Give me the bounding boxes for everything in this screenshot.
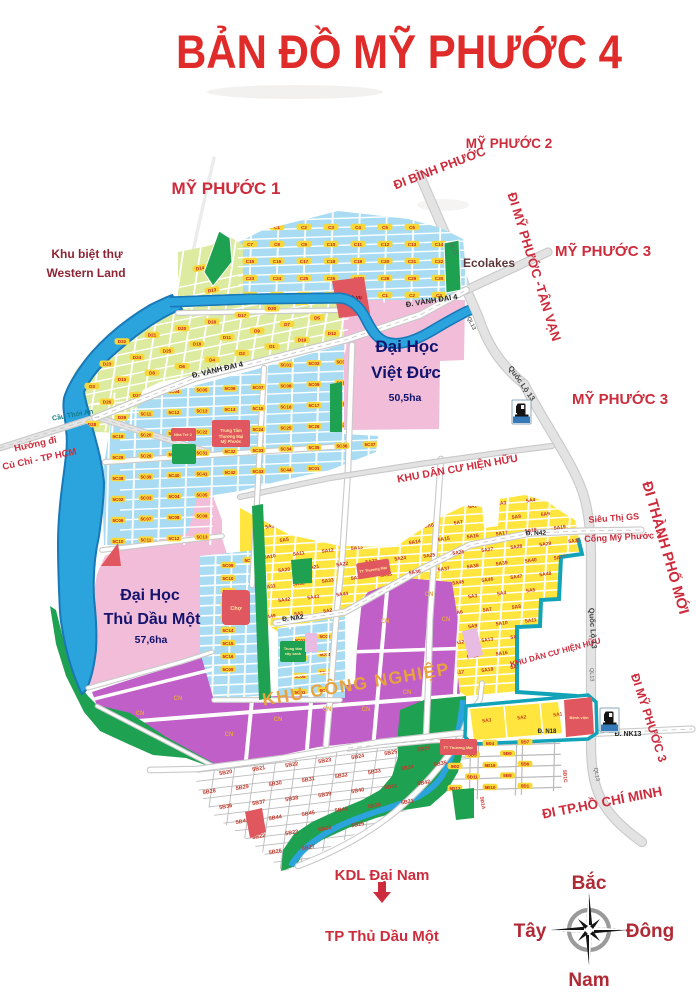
svg-text:C20: C20: [381, 259, 390, 264]
svg-text:5Đ7: 5Đ7: [521, 740, 530, 745]
svg-text:D32: D32: [118, 339, 127, 344]
svg-text:50,5ha: 50,5ha: [389, 392, 422, 404]
svg-text:5C09: 5C09: [197, 514, 208, 519]
svg-text:5C01: 5C01: [281, 362, 292, 367]
svg-text:C8: C8: [274, 242, 280, 247]
svg-text:5C14: 5C14: [225, 407, 236, 412]
svg-text:Western Land: Western Land: [46, 266, 125, 280]
svg-text:D10: D10: [118, 377, 127, 382]
svg-text:C1: C1: [382, 293, 388, 298]
svg-text:C28: C28: [381, 276, 390, 281]
svg-text:5C44: 5C44: [281, 467, 292, 472]
svg-text:5C12: 5C12: [169, 410, 180, 415]
svg-text:C10: C10: [327, 242, 336, 247]
svg-text:C23: C23: [246, 276, 255, 281]
svg-text:5C09: 5C09: [223, 563, 234, 568]
svg-text:5C19: 5C19: [113, 434, 124, 439]
svg-text:5C26: 5C26: [309, 424, 320, 429]
svg-text:C24: C24: [273, 276, 282, 281]
svg-text:CN: CN: [274, 717, 283, 723]
svg-text:D7: D7: [284, 322, 290, 327]
svg-text:5C13: 5C13: [197, 409, 208, 414]
svg-text:Đ. N42: Đ. N42: [526, 530, 547, 538]
svg-text:5C15: 5C15: [253, 406, 264, 411]
svg-text:5C02: 5C02: [320, 634, 331, 639]
svg-text:Chợ: Chợ: [230, 606, 241, 612]
svg-text:5C10: 5C10: [113, 539, 124, 544]
svg-text:5C28: 5C28: [113, 455, 124, 460]
svg-text:MỸ PHƯỚC 1: MỸ PHƯỚC 1: [172, 178, 281, 198]
svg-text:5C05: 5C05: [197, 388, 208, 393]
svg-text:5C13: 5C13: [197, 535, 208, 540]
svg-text:5C22: 5C22: [197, 430, 208, 435]
svg-text:5C32: 5C32: [225, 449, 236, 454]
svg-text:5C31: 5C31: [197, 451, 208, 456]
svg-text:5C12: 5C12: [169, 536, 180, 541]
svg-text:5A4: 5A4: [526, 497, 536, 504]
svg-text:5C42: 5C42: [225, 470, 236, 475]
svg-text:5A4: 5A4: [497, 590, 507, 597]
svg-text:5A8: 5A8: [511, 514, 521, 521]
svg-text:C4: C4: [355, 225, 361, 230]
svg-text:Trung tâm: Trung tâm: [284, 647, 303, 651]
svg-text:5C16: 5C16: [281, 404, 292, 409]
svg-text:D20: D20: [178, 326, 187, 331]
svg-text:5C08: 5C08: [281, 383, 292, 388]
svg-text:5C06: 5C06: [225, 386, 236, 391]
svg-text:D12: D12: [328, 331, 337, 336]
svg-text:5C11: 5C11: [141, 537, 152, 542]
svg-text:D2: D2: [239, 351, 245, 356]
svg-text:5C02: 5C02: [309, 361, 320, 366]
svg-text:C25: C25: [300, 276, 309, 281]
svg-text:5C06: 5C06: [113, 518, 124, 523]
svg-text:Thủ Dầu Một: Thủ Dầu Một: [104, 611, 202, 628]
svg-text:5Đ19: 5Đ19: [485, 763, 496, 768]
svg-text:Bệnh viện: Bệnh viện: [569, 715, 589, 720]
svg-text:C15: C15: [246, 259, 255, 264]
svg-text:D3: D3: [89, 384, 95, 389]
svg-text:Việt Đức: Việt Đức: [371, 363, 441, 382]
svg-text:5C01: 5C01: [309, 466, 320, 471]
svg-text:CN: CN: [136, 711, 145, 717]
svg-text:Nam: Nam: [568, 970, 609, 991]
svg-text:C29: C29: [408, 276, 417, 281]
svg-text:5C02: 5C02: [113, 497, 124, 502]
svg-text:5C17: 5C17: [309, 403, 320, 408]
svg-text:5Đ1C: 5Đ1C: [561, 770, 568, 784]
svg-text:D18: D18: [193, 342, 202, 347]
svg-text:5C07: 5C07: [253, 385, 264, 390]
svg-text:TP Thủ Dầu Một: TP Thủ Dầu Một: [325, 928, 439, 945]
svg-text:TT Thương Mại: TT Thương Mại: [443, 745, 472, 750]
svg-text:C26: C26: [327, 276, 336, 281]
svg-text:5C09: 5C09: [223, 667, 234, 672]
svg-text:D21: D21: [148, 333, 157, 338]
svg-text:D1: D1: [269, 344, 275, 349]
svg-text:CN: CN: [225, 732, 234, 738]
svg-text:CN: CN: [174, 696, 183, 702]
svg-text:5C25: 5C25: [281, 425, 292, 430]
svg-text:5C15: 5C15: [223, 641, 234, 646]
svg-text:D17: D17: [238, 313, 247, 318]
svg-text:5C20: 5C20: [141, 432, 152, 437]
svg-text:C30: C30: [435, 276, 444, 281]
svg-text:5Đ4: 5Đ4: [486, 741, 495, 746]
svg-text:5A7: 5A7: [453, 519, 463, 526]
svg-text:5Đ9: 5Đ9: [503, 751, 512, 756]
svg-text:D29: D29: [118, 415, 127, 420]
svg-text:5C08: 5C08: [169, 515, 180, 520]
svg-text:D8: D8: [149, 371, 155, 376]
svg-text:D6: D6: [179, 364, 185, 369]
svg-text:5C37: 5C37: [365, 442, 376, 447]
svg-text:CN: CN: [381, 619, 390, 625]
svg-text:C2: C2: [409, 293, 415, 298]
svg-text:5C41: 5C41: [197, 472, 208, 477]
svg-text:5C35: 5C35: [309, 445, 320, 450]
svg-text:CN: CN: [362, 707, 371, 713]
svg-text:5Đ6: 5Đ6: [521, 762, 530, 767]
svg-text:Đông: Đông: [626, 921, 675, 942]
svg-text:Tây: Tây: [514, 921, 547, 942]
svg-text:5C39: 5C39: [141, 474, 152, 479]
svg-text:C21: C21: [408, 259, 417, 264]
svg-text:5C43: 5C43: [253, 469, 264, 474]
svg-text:CN: CN: [323, 707, 332, 713]
svg-text:5C09: 5C09: [309, 382, 320, 387]
svg-text:cây xanh: cây xanh: [285, 652, 302, 656]
svg-text:D11: D11: [223, 335, 232, 340]
svg-text:Ecolakes: Ecolakes: [463, 256, 515, 270]
svg-text:5C10: 5C10: [223, 576, 234, 581]
svg-text:C18: C18: [327, 259, 336, 264]
svg-text:D16: D16: [208, 319, 217, 324]
svg-text:5C03: 5C03: [141, 495, 152, 500]
svg-text:MỸ PHƯỚC 3: MỸ PHƯỚC 3: [555, 242, 651, 260]
svg-text:C9: C9: [301, 242, 307, 247]
svg-text:Khu biệt thự: Khu biệt thự: [51, 247, 123, 261]
svg-text:5C11: 5C11: [141, 411, 152, 416]
svg-text:5C07: 5C07: [141, 516, 152, 521]
svg-text:Đ. N18: Đ. N18: [538, 729, 557, 735]
svg-text:Đại Học: Đại Học: [375, 337, 438, 356]
svg-text:C5: C5: [382, 225, 388, 230]
svg-text:5C29: 5C29: [141, 453, 152, 458]
svg-text:5C34: 5C34: [281, 446, 292, 451]
svg-text:5A5: 5A5: [526, 587, 536, 594]
svg-text:D30: D30: [268, 306, 277, 311]
svg-text:5Đ11: 5Đ11: [467, 774, 478, 779]
svg-text:D9: D9: [254, 329, 260, 334]
svg-text:C11: C11: [354, 242, 363, 247]
svg-text:D19: D19: [298, 338, 307, 343]
svg-text:5C38: 5C38: [113, 476, 124, 481]
svg-text:Trung Tâm: Trung Tâm: [220, 428, 242, 433]
svg-text:C7: C7: [247, 242, 253, 247]
svg-text:D25: D25: [163, 348, 172, 353]
svg-text:5C33: 5C33: [253, 448, 264, 453]
svg-text:C2: C2: [301, 225, 307, 230]
svg-text:5C04: 5C04: [169, 494, 180, 499]
svg-text:C17: C17: [300, 259, 309, 264]
svg-text:QL13: QL13: [588, 668, 594, 682]
svg-text:Mỹ Phước: Mỹ Phước: [221, 439, 242, 444]
svg-text:5A8: 5A8: [511, 604, 521, 611]
svg-text:C19: C19: [354, 259, 363, 264]
svg-text:5Đ2: 5Đ2: [451, 764, 460, 769]
svg-text:BẢN ĐỒ MỸ PHƯỚC 4: BẢN ĐỒ MỸ PHƯỚC 4: [176, 25, 622, 78]
svg-text:CN: CN: [442, 617, 451, 623]
svg-text:CN: CN: [403, 690, 412, 696]
svg-text:D26: D26: [103, 400, 112, 405]
svg-text:D23: D23: [103, 362, 112, 367]
svg-text:Nhà Trẻ 2: Nhà Trẻ 2: [174, 432, 193, 437]
svg-text:D24: D24: [133, 355, 142, 360]
svg-text:5C36: 5C36: [337, 444, 348, 449]
svg-text:CN: CN: [425, 592, 434, 598]
svg-text:5Đ1: 5Đ1: [521, 784, 530, 789]
svg-text:C13: C13: [408, 242, 417, 247]
svg-text:5C40: 5C40: [169, 473, 180, 478]
svg-text:C6: C6: [409, 225, 415, 230]
svg-text:Bắc: Bắc: [572, 872, 607, 894]
svg-text:Đại Học: Đại Học: [120, 587, 180, 604]
svg-text:5Đ8: 5Đ8: [503, 773, 512, 778]
svg-text:C22: C22: [435, 259, 444, 264]
svg-text:KDL Đại Nam: KDL Đại Nam: [335, 867, 430, 884]
svg-text:5C05: 5C05: [197, 493, 208, 498]
svg-text:C14: C14: [435, 242, 444, 247]
svg-text:C3: C3: [328, 225, 334, 230]
svg-text:5C24: 5C24: [253, 427, 264, 432]
svg-text:C12: C12: [381, 242, 390, 247]
svg-text:5C14: 5C14: [223, 628, 234, 633]
svg-text:D5: D5: [314, 315, 320, 320]
svg-text:5C16: 5C16: [223, 654, 234, 659]
svg-text:MỸ PHƯỚC 3: MỸ PHƯỚC 3: [572, 390, 668, 408]
svg-text:5Đ10: 5Đ10: [485, 785, 496, 790]
svg-text:C16: C16: [273, 259, 282, 264]
svg-text:D4: D4: [209, 357, 215, 362]
svg-text:57,6ha: 57,6ha: [135, 634, 168, 646]
